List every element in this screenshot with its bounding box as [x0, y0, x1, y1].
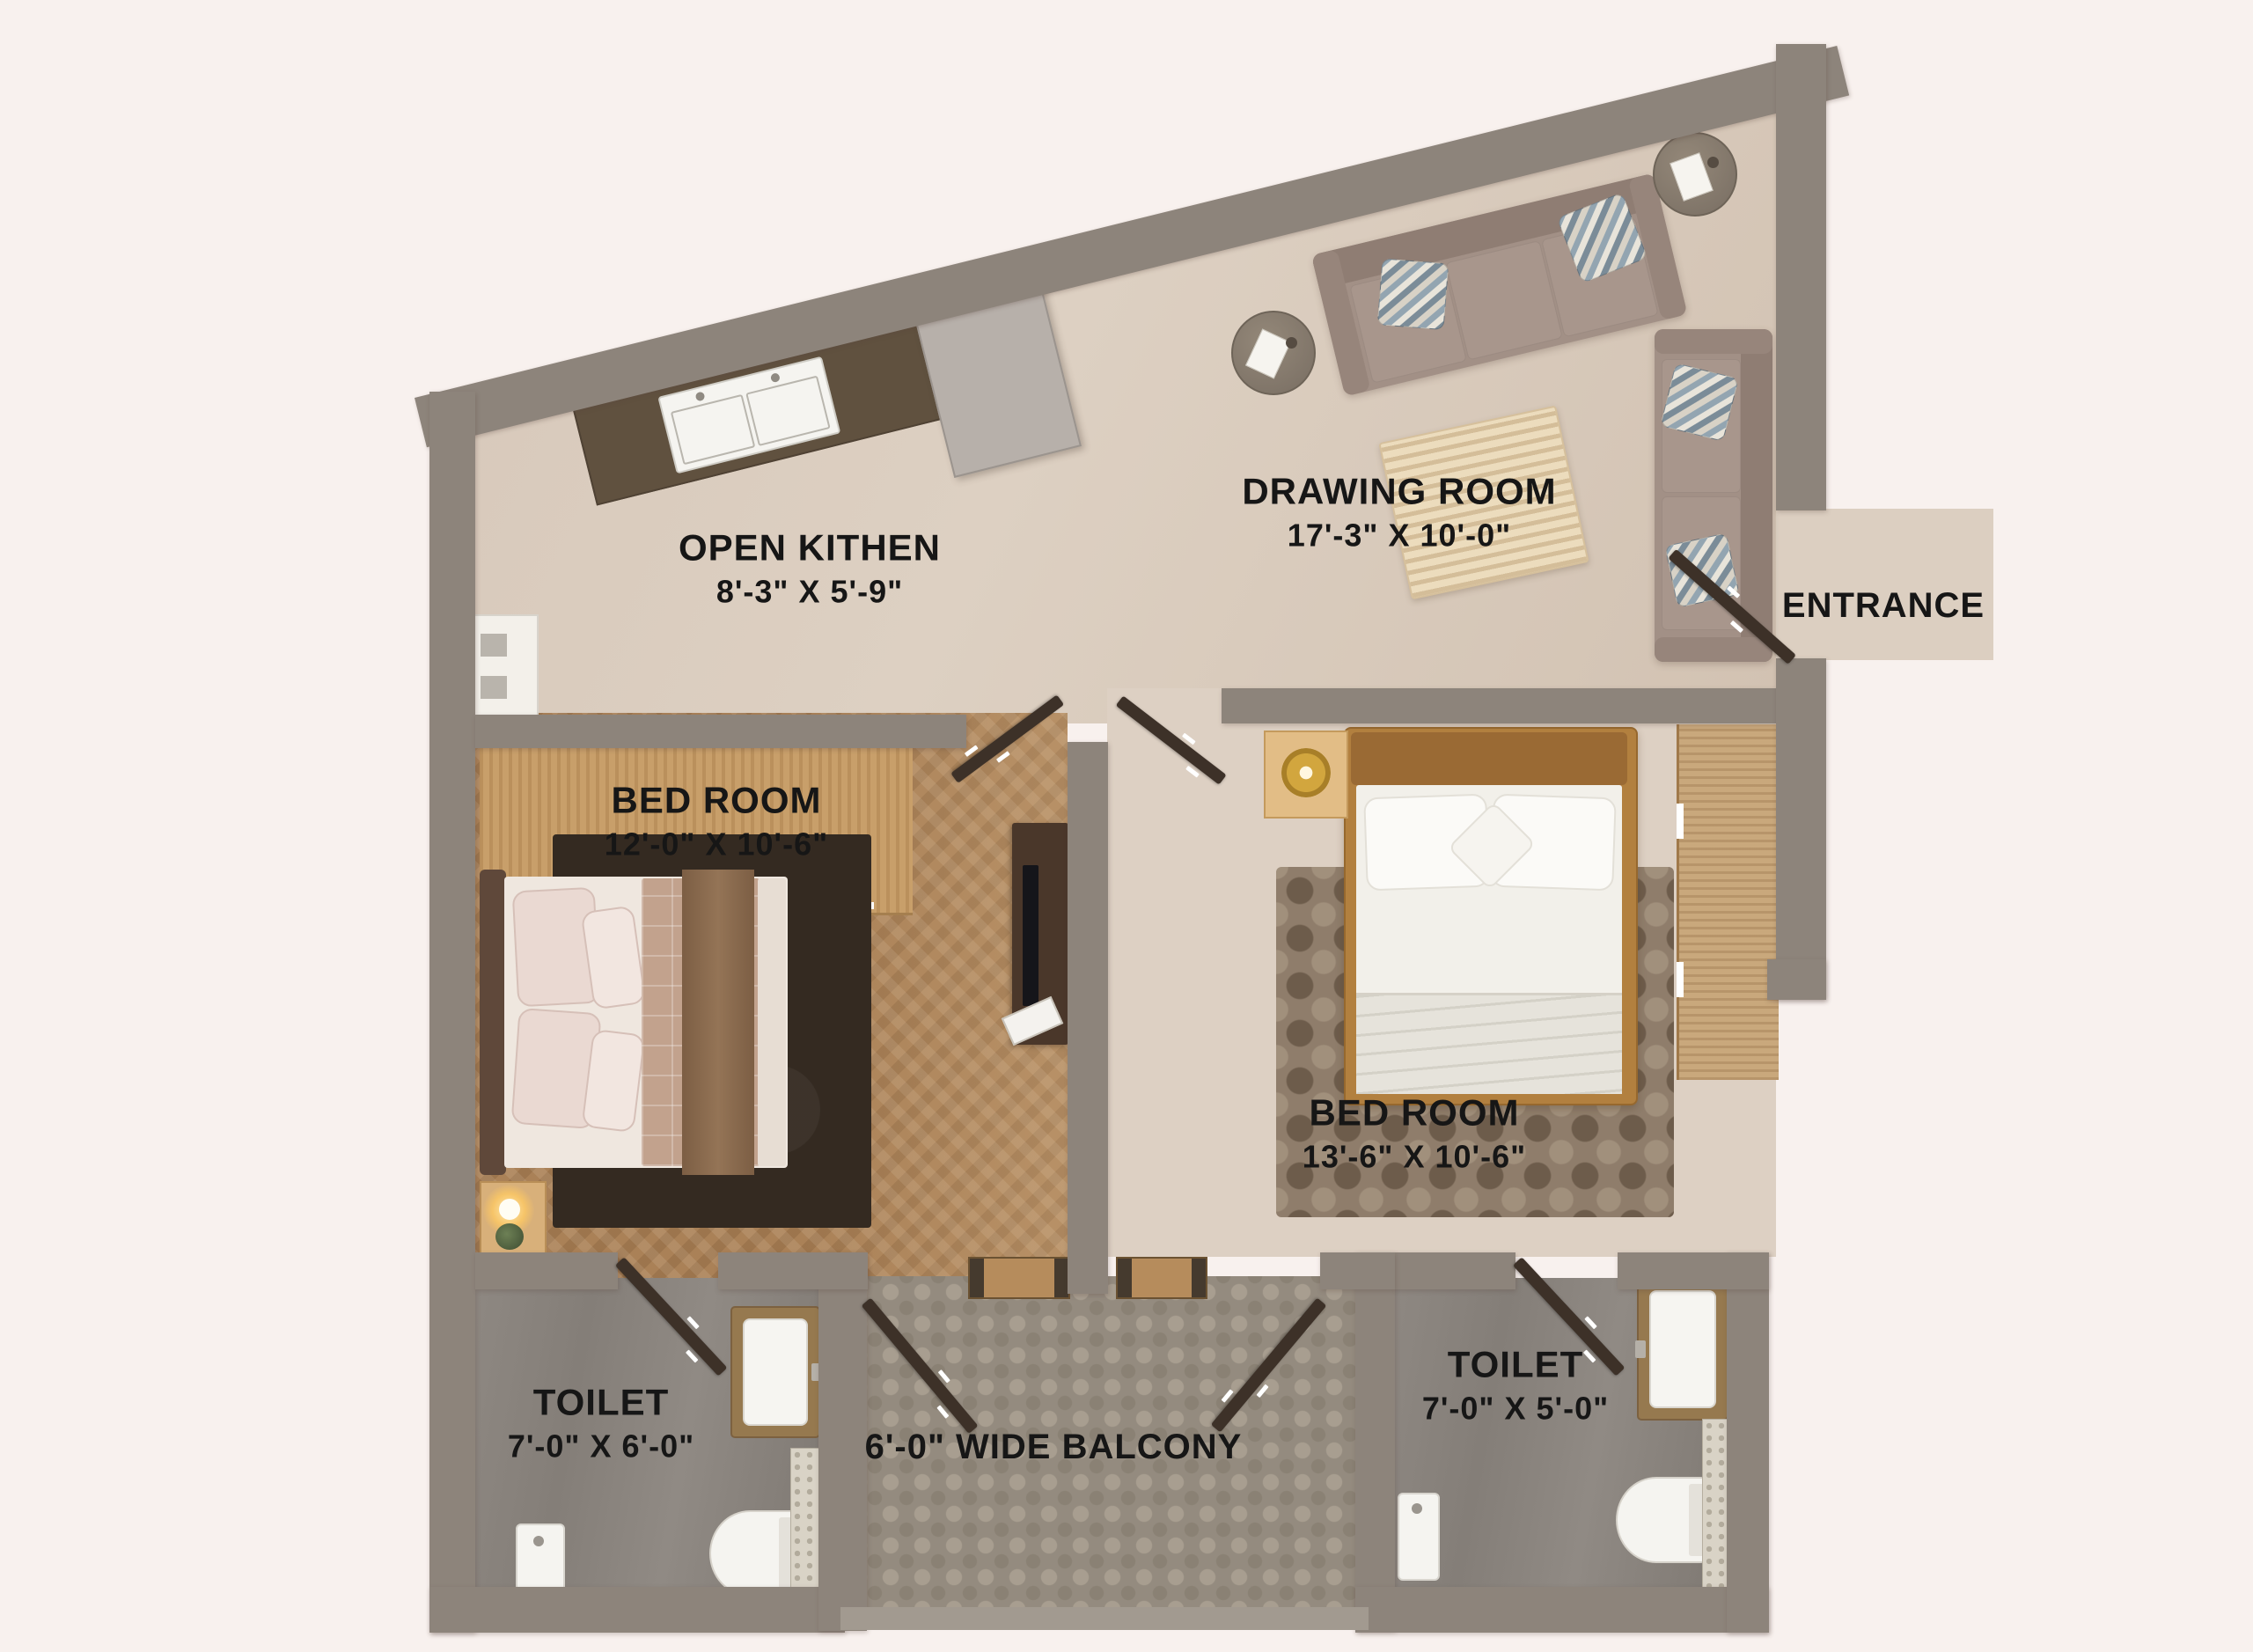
wall-toilet-left-top-a — [475, 1252, 618, 1289]
label-open-kitchen: OPEN KITHEN 8'-3" X 5'-9" — [679, 525, 941, 612]
room-name: TOILET — [508, 1379, 694, 1426]
label-bedroom-left: BED ROOM 12'-0" X 10'-6" — [605, 777, 828, 864]
floor-plan-canvas: OPEN KITHEN 8'-3" X 5'-9" DRAWING ROOM 1… — [0, 0, 2253, 1652]
wall-bedroom-right-balcony — [1320, 1252, 1395, 1289]
table-lamp-icon — [499, 1199, 520, 1220]
wardrobe-handle — [1677, 962, 1684, 997]
wall-balcony-left — [818, 1252, 867, 1631]
tv-screen — [1023, 865, 1038, 1006]
hob-icon — [481, 676, 507, 699]
wall-toilet-right-top-a — [1395, 1252, 1515, 1289]
hob-icon — [481, 634, 507, 657]
room-dims: 7'-0" X 5'-0" — [1422, 1388, 1609, 1429]
headboard — [1351, 732, 1627, 785]
room-dims: 7'-0" X 6'-0" — [508, 1426, 694, 1467]
wall-right-upper — [1776, 44, 1826, 510]
basin-bowl — [743, 1318, 808, 1426]
wardrobe-right-bedroom — [1677, 724, 1779, 1080]
wall-toilet-left-top-b — [718, 1252, 868, 1289]
wall-right-lower — [1776, 658, 1826, 1000]
room-name: OPEN KITHEN — [679, 525, 941, 571]
label-toilet-right: TOILET 7'-0" X 5'-0" — [1422, 1341, 1609, 1428]
nightstand-left-bedroom — [480, 1181, 547, 1255]
sofa-two-seater — [1655, 329, 1772, 662]
shower-head-icon — [1412, 1503, 1422, 1514]
balcony-step-bench — [968, 1257, 1070, 1299]
tap-icon — [1635, 1340, 1646, 1358]
bed-right — [1344, 727, 1638, 1105]
balcony-railing — [840, 1607, 1369, 1630]
decor-book — [1245, 329, 1291, 379]
room-dims: 17'-3" X 10'-0" — [1242, 515, 1556, 556]
wall-bottom-left — [429, 1587, 845, 1633]
label-bedroom-right: BED ROOM 13'-6" X 10'-6" — [1303, 1090, 1526, 1177]
room-name: DRAWING ROOM — [1242, 468, 1556, 515]
shower-head-icon — [533, 1536, 544, 1546]
bed-runner — [682, 870, 754, 1175]
wall-toilet-right-top-b — [1618, 1252, 1769, 1289]
room-name: TOILET — [1422, 1341, 1609, 1388]
wall-bottom-right — [1355, 1587, 1769, 1633]
wall-bedroom-right-top — [1222, 688, 1776, 723]
room-name: ENTRANCE — [1782, 584, 1985, 628]
wall-bedroom-left-top — [475, 715, 966, 748]
sink-basin-right — [745, 376, 831, 446]
room-dims: 8'-3" X 5'-9" — [679, 571, 941, 613]
wall-toilet-right-right — [1727, 1252, 1769, 1633]
bed-left — [480, 870, 788, 1175]
folded-duvet — [1356, 993, 1622, 1094]
wall-toilet-right-left — [1355, 1252, 1395, 1631]
wall-left — [429, 392, 475, 1633]
balcony-step-bench — [1116, 1257, 1207, 1299]
room-name: 6'-0" WIDE BALCONY — [865, 1425, 1243, 1469]
bed-foot-sheet — [758, 878, 786, 1166]
label-toilet-left: TOILET 7'-0" X 6'-0" — [508, 1379, 694, 1466]
decor-bowl — [1707, 157, 1719, 168]
room-dims: 12'-0" X 10'-6" — [605, 824, 828, 865]
basin-bowl — [1649, 1290, 1716, 1408]
gold-lamp-icon — [1281, 748, 1331, 797]
toilet-seat — [709, 1510, 801, 1597]
tv-console — [1012, 823, 1068, 1045]
shower-tray — [1398, 1493, 1440, 1581]
side-table-round — [1653, 132, 1737, 217]
nightstand-right-bedroom — [1264, 731, 1348, 819]
room-name: BED ROOM — [1303, 1090, 1526, 1136]
wall-right-cap — [1767, 959, 1826, 1000]
faucet-icon — [694, 391, 705, 401]
washbasin — [730, 1306, 820, 1438]
cushion — [1377, 258, 1449, 330]
room-name: BED ROOM — [605, 777, 828, 824]
wall-central — [1068, 742, 1108, 1294]
plant-icon — [495, 1223, 524, 1250]
faucet-icon — [770, 372, 781, 383]
side-table-round — [1231, 311, 1316, 395]
headboard — [480, 870, 506, 1175]
label-drawing-room: DRAWING ROOM 17'-3" X 10'-0" — [1242, 468, 1556, 555]
decor-bowl — [1286, 337, 1297, 349]
sofa-arm — [1655, 329, 1772, 354]
label-balcony: 6'-0" WIDE BALCONY — [865, 1425, 1243, 1469]
room-dims: 13'-6" X 10'-6" — [1303, 1136, 1526, 1178]
toilet-seat — [1616, 1477, 1711, 1563]
washbasin — [1637, 1278, 1728, 1421]
sink-basin-left — [671, 394, 756, 465]
wardrobe-handle — [1677, 804, 1684, 839]
sofa-arm — [1655, 637, 1772, 662]
label-entrance: ENTRANCE — [1782, 584, 1985, 628]
kitchen-side-counter — [465, 614, 539, 722]
